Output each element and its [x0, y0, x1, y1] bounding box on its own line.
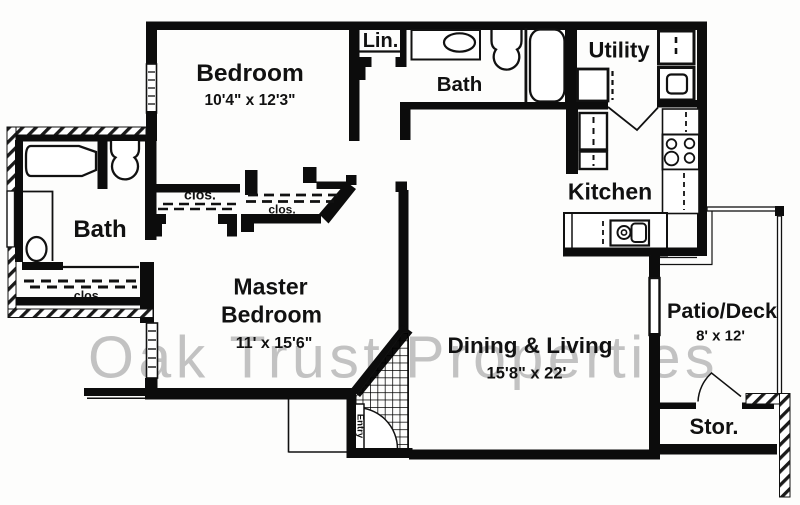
svg-text:Master: Master [233, 274, 307, 300]
svg-text:Dining & Living: Dining & Living [448, 333, 613, 358]
svg-text:Bath: Bath [73, 216, 126, 243]
svg-text:Patio/Deck: Patio/Deck [667, 299, 777, 323]
svg-text:Utility: Utility [588, 38, 650, 63]
svg-text:Bath: Bath [437, 73, 483, 96]
svg-text:Kitchen: Kitchen [568, 179, 652, 205]
svg-text:8' x 12': 8' x 12' [696, 328, 745, 345]
svg-text:Entry: Entry [355, 414, 366, 439]
svg-text:Bedroom: Bedroom [221, 302, 322, 328]
svg-text:clos.: clos. [184, 187, 216, 203]
svg-text:Lin.: Lin. [363, 30, 399, 52]
svg-text:Bedroom: Bedroom [196, 60, 304, 87]
svg-text:11' x 15'6": 11' x 15'6" [236, 335, 313, 352]
svg-text:10'4" x 12'3": 10'4" x 12'3" [204, 92, 295, 109]
svg-text:clos.: clos. [268, 203, 295, 217]
svg-text:15'8" x 22': 15'8" x 22' [487, 365, 567, 383]
svg-text:Stor.: Stor. [690, 414, 739, 439]
